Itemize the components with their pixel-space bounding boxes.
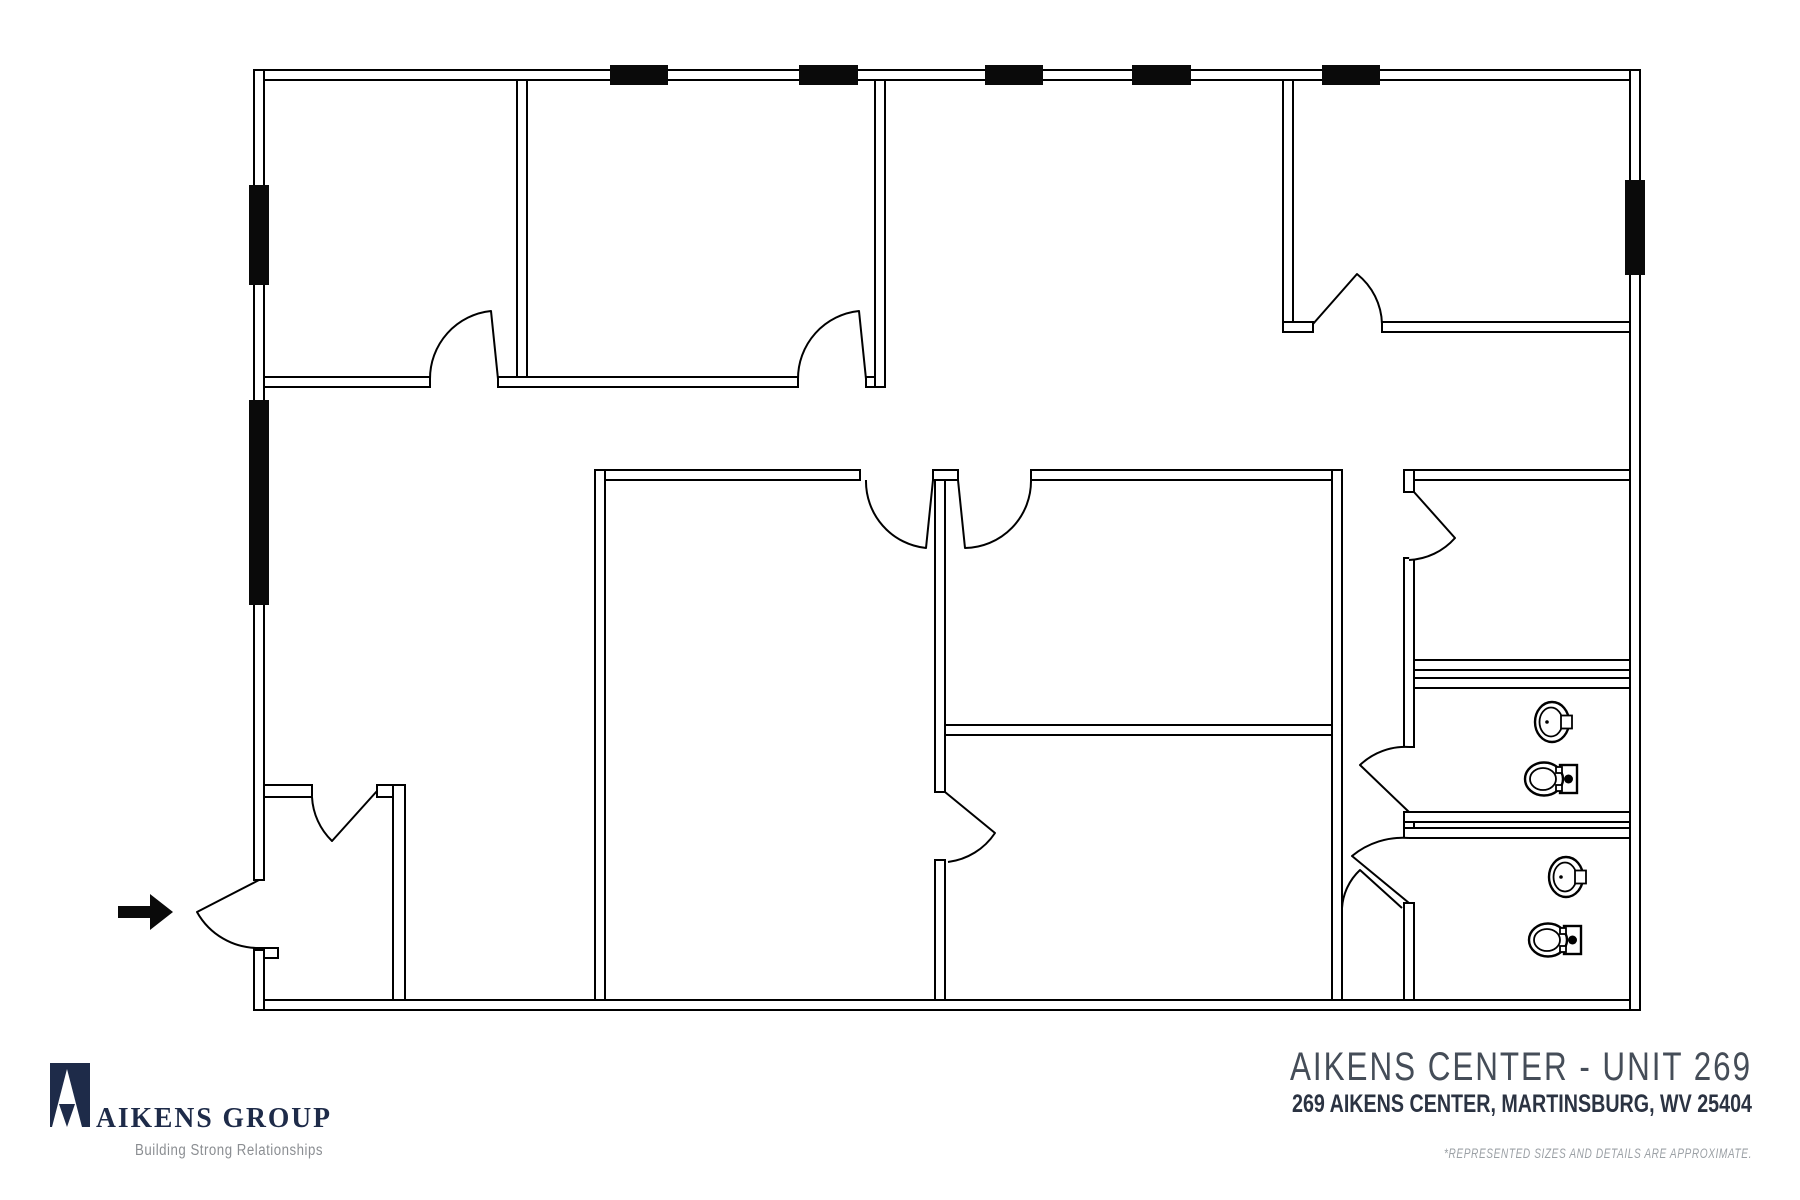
wall-segment xyxy=(875,80,885,387)
door-swing-icon xyxy=(866,480,933,548)
entry-arrow-icon xyxy=(118,894,173,930)
wall-segment xyxy=(595,470,605,1000)
window-marker-icon xyxy=(249,185,269,285)
door-swing-icon xyxy=(430,311,498,379)
plan-title: AIKENS CENTER - UNIT 269 xyxy=(1290,1045,1752,1089)
window-marker-icon xyxy=(1322,65,1380,85)
aikens-group-logo: AIKENS GROUP Building Strong Relationshi… xyxy=(50,1063,332,1159)
wall-segment xyxy=(1283,80,1293,322)
door-swing-icon xyxy=(958,480,1031,548)
wall-segment xyxy=(517,80,527,377)
wall-segment xyxy=(945,725,1342,735)
wall-segment xyxy=(1404,828,1630,838)
window-marker-icon xyxy=(1132,65,1191,85)
window-marker-icon xyxy=(249,400,269,605)
wall-segment xyxy=(254,70,1640,80)
toilet-icon xyxy=(1529,924,1581,957)
wall-segment xyxy=(1414,678,1630,688)
wall-segment xyxy=(1404,470,1630,480)
wall-segment xyxy=(1382,322,1630,332)
wall-segment xyxy=(1414,660,1630,670)
wall-segment xyxy=(1404,903,1414,1000)
title-block: AIKENS CENTER - UNIT 269 269 AIKENS CENT… xyxy=(1290,1045,1752,1161)
window-marker-icon xyxy=(985,65,1043,85)
sink-icon xyxy=(1549,857,1586,897)
door-swing-icon xyxy=(798,311,866,379)
wall-segment xyxy=(264,377,430,387)
wall-segment xyxy=(1332,470,1342,1000)
window-marker-icon xyxy=(610,65,668,85)
door-swing-icon xyxy=(1313,274,1382,324)
wall-segment xyxy=(595,470,860,480)
wall-segment xyxy=(935,480,945,792)
wall-segment xyxy=(377,785,393,797)
wall-segment xyxy=(1283,322,1313,332)
window-marker-icon xyxy=(1625,180,1645,275)
wall-segment xyxy=(1404,558,1414,747)
wall-segment xyxy=(933,470,958,480)
wall-segment xyxy=(935,860,945,1000)
door-swing-icon xyxy=(312,791,377,841)
plan-address: 269 AIKENS CENTER, MARTINSBURG, WV 25404 xyxy=(1292,1090,1752,1118)
wall-segment xyxy=(1404,470,1414,492)
door-swings xyxy=(197,274,1455,948)
floor-plan-drawing: AIKENS GROUP Building Strong Relationshi… xyxy=(0,0,1800,1200)
toilet-icon xyxy=(1525,763,1577,796)
logo-tagline: Building Strong Relationships xyxy=(135,1142,323,1159)
sink-icon xyxy=(1535,702,1572,742)
window-marker-icon xyxy=(799,65,858,85)
wall-segment xyxy=(264,785,312,797)
floor-plan-page: AIKENS GROUP Building Strong Relationshi… xyxy=(0,0,1800,1200)
entry-door-swing-icon xyxy=(197,880,259,948)
wall-segment xyxy=(254,1000,1640,1010)
door-swing-icon xyxy=(945,792,995,862)
door-swing-icon xyxy=(1409,492,1455,560)
wall-segment xyxy=(1031,470,1342,480)
wall-segment xyxy=(498,377,798,387)
plan-disclaimer: *REPRESENTED SIZES AND DETAILS ARE APPRO… xyxy=(1444,1145,1752,1161)
wall-segment xyxy=(1404,812,1630,822)
wall-segment xyxy=(254,950,264,1010)
wall-segment xyxy=(393,785,405,1000)
logo-wordmark: AIKENS GROUP xyxy=(96,1103,332,1134)
door-swing-icon xyxy=(1360,747,1409,812)
